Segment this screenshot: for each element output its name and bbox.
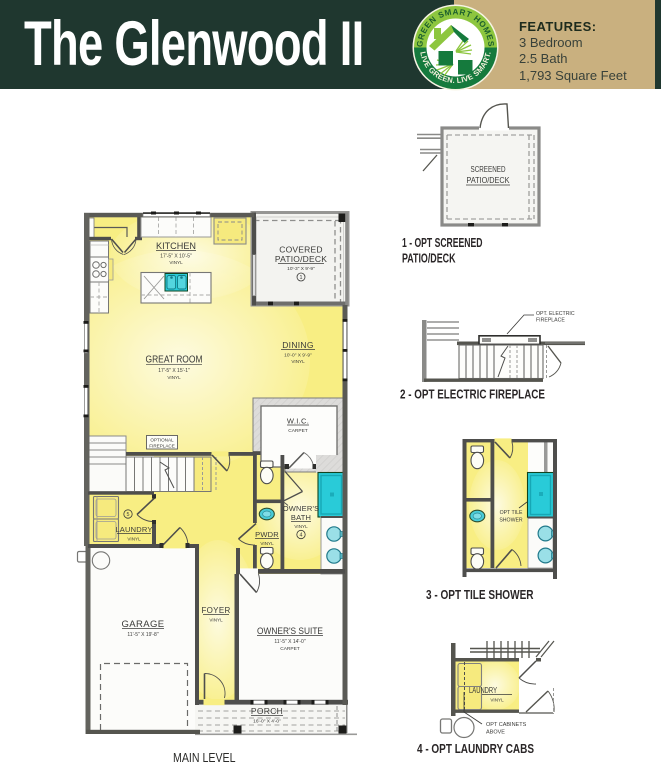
svg-text:4: 4: [300, 533, 303, 539]
svg-text:PORCH: PORCH: [251, 706, 283, 716]
svg-text:MAIN LEVEL: MAIN LEVEL: [173, 750, 236, 765]
svg-text:VINYL: VINYL: [167, 375, 181, 380]
svg-text:CARPET: CARPET: [280, 646, 300, 652]
svg-text:SCREENED: SCREENED: [471, 165, 506, 174]
svg-text:VINYL: VINYL: [260, 541, 274, 546]
svg-text:OPT TILE: OPT TILE: [500, 510, 523, 516]
svg-text:VINYL: VINYL: [490, 698, 504, 703]
svg-text:VINYL: VINYL: [169, 260, 183, 265]
svg-text:SHOWER: SHOWER: [499, 518, 523, 524]
svg-text:VINYL: VINYL: [127, 537, 141, 542]
svg-text:COVERED: COVERED: [279, 245, 322, 255]
svg-text:OPT. ELECTRIC: OPT. ELECTRIC: [536, 311, 575, 317]
svg-text:1: 1: [300, 275, 303, 281]
svg-text:10'-0" X 9'-9": 10'-0" X 9'-9": [284, 353, 312, 359]
svg-text:5: 5: [127, 512, 130, 518]
svg-text:PATIO/DECK: PATIO/DECK: [467, 176, 511, 185]
svg-text:2 - OPT ELECTRIC FIREPLACE: 2 - OPT ELECTRIC FIREPLACE: [400, 387, 545, 402]
svg-text:17'-5" X 15'-1": 17'-5" X 15'-1": [158, 368, 190, 374]
svg-text:11'-5" X 19'-8": 11'-5" X 19'-8": [127, 632, 158, 638]
svg-text:10'-3" X 9'-9": 10'-3" X 9'-9": [287, 266, 315, 272]
svg-text:VINYL: VINYL: [294, 524, 308, 529]
svg-text:17'-5" X 10'-5": 17'-5" X 10'-5": [160, 254, 192, 260]
svg-text:4 - OPT LAUNDRY CABS: 4 - OPT LAUNDRY CABS: [417, 741, 534, 756]
svg-text:ABOVE: ABOVE: [486, 730, 505, 736]
svg-text:1 - OPT SCREENED: 1 - OPT SCREENED: [402, 235, 483, 250]
svg-text:OPTIONAL: OPTIONAL: [150, 438, 174, 443]
svg-text:W.I.C.: W.I.C.: [287, 417, 309, 426]
svg-text:GREAT ROOM: GREAT ROOM: [146, 355, 203, 366]
svg-text:FOYER: FOYER: [201, 606, 230, 615]
svg-text:PWDR: PWDR: [255, 530, 279, 539]
svg-text:PATIO/DECK: PATIO/DECK: [275, 254, 327, 264]
svg-text:11'-5" X 14'-0": 11'-5" X 14'-0": [274, 639, 305, 645]
svg-text:OPT CABINETS: OPT CABINETS: [486, 722, 527, 728]
svg-text:FIREPLACE: FIREPLACE: [149, 443, 175, 448]
svg-text:PATIO/DECK: PATIO/DECK: [402, 251, 456, 266]
svg-text:VINYL: VINYL: [291, 359, 305, 364]
svg-text:BATH: BATH: [291, 513, 311, 522]
svg-text:LAUNDRY: LAUNDRY: [115, 525, 152, 534]
svg-text:CARPET: CARPET: [288, 428, 308, 434]
svg-text:16'-0" X 4'-0": 16'-0" X 4'-0": [253, 719, 281, 725]
svg-text:VINYL: VINYL: [209, 618, 223, 623]
svg-text:OWNER'S: OWNER'S: [283, 504, 320, 513]
svg-text:LAUNDRY: LAUNDRY: [469, 686, 498, 695]
svg-text:DINING: DINING: [282, 340, 314, 350]
svg-text:FIREPLACE: FIREPLACE: [536, 318, 565, 324]
svg-text:3 - OPT TILE SHOWER: 3 - OPT TILE SHOWER: [426, 587, 534, 602]
